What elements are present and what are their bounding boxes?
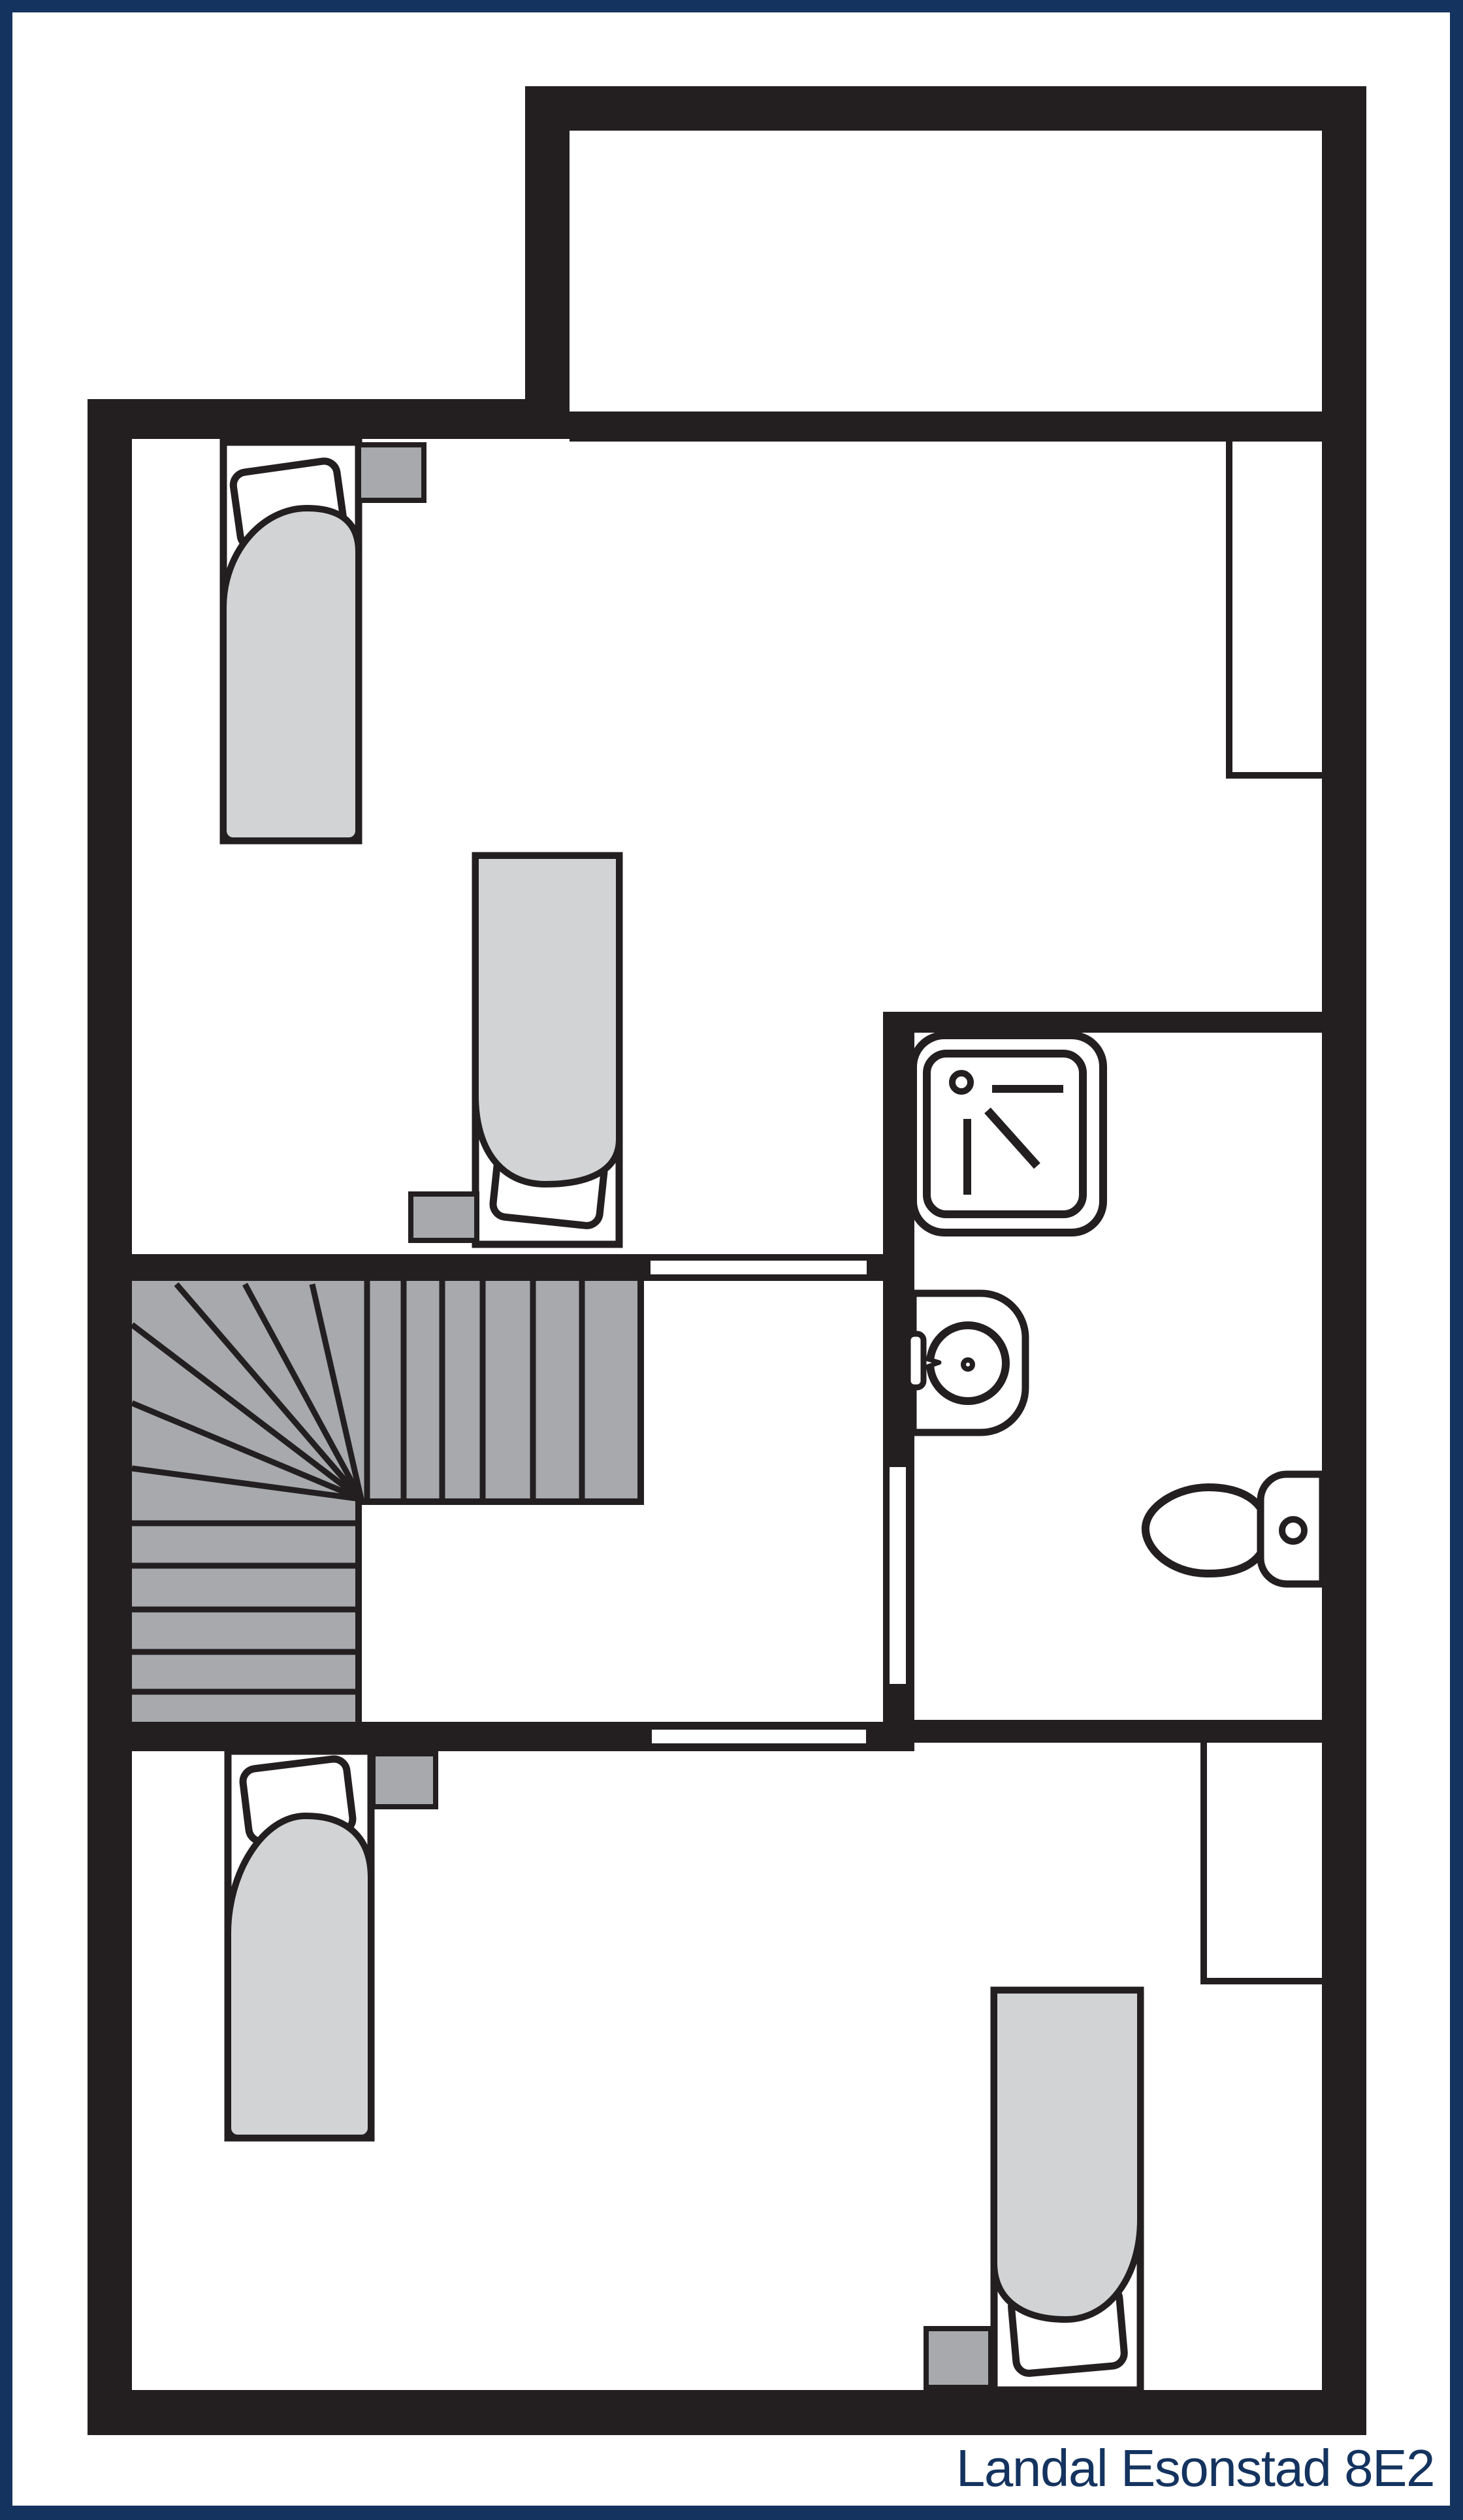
svg-text:Landal Esonstad 8E2: Landal Esonstad 8E2 bbox=[956, 2439, 1434, 2497]
